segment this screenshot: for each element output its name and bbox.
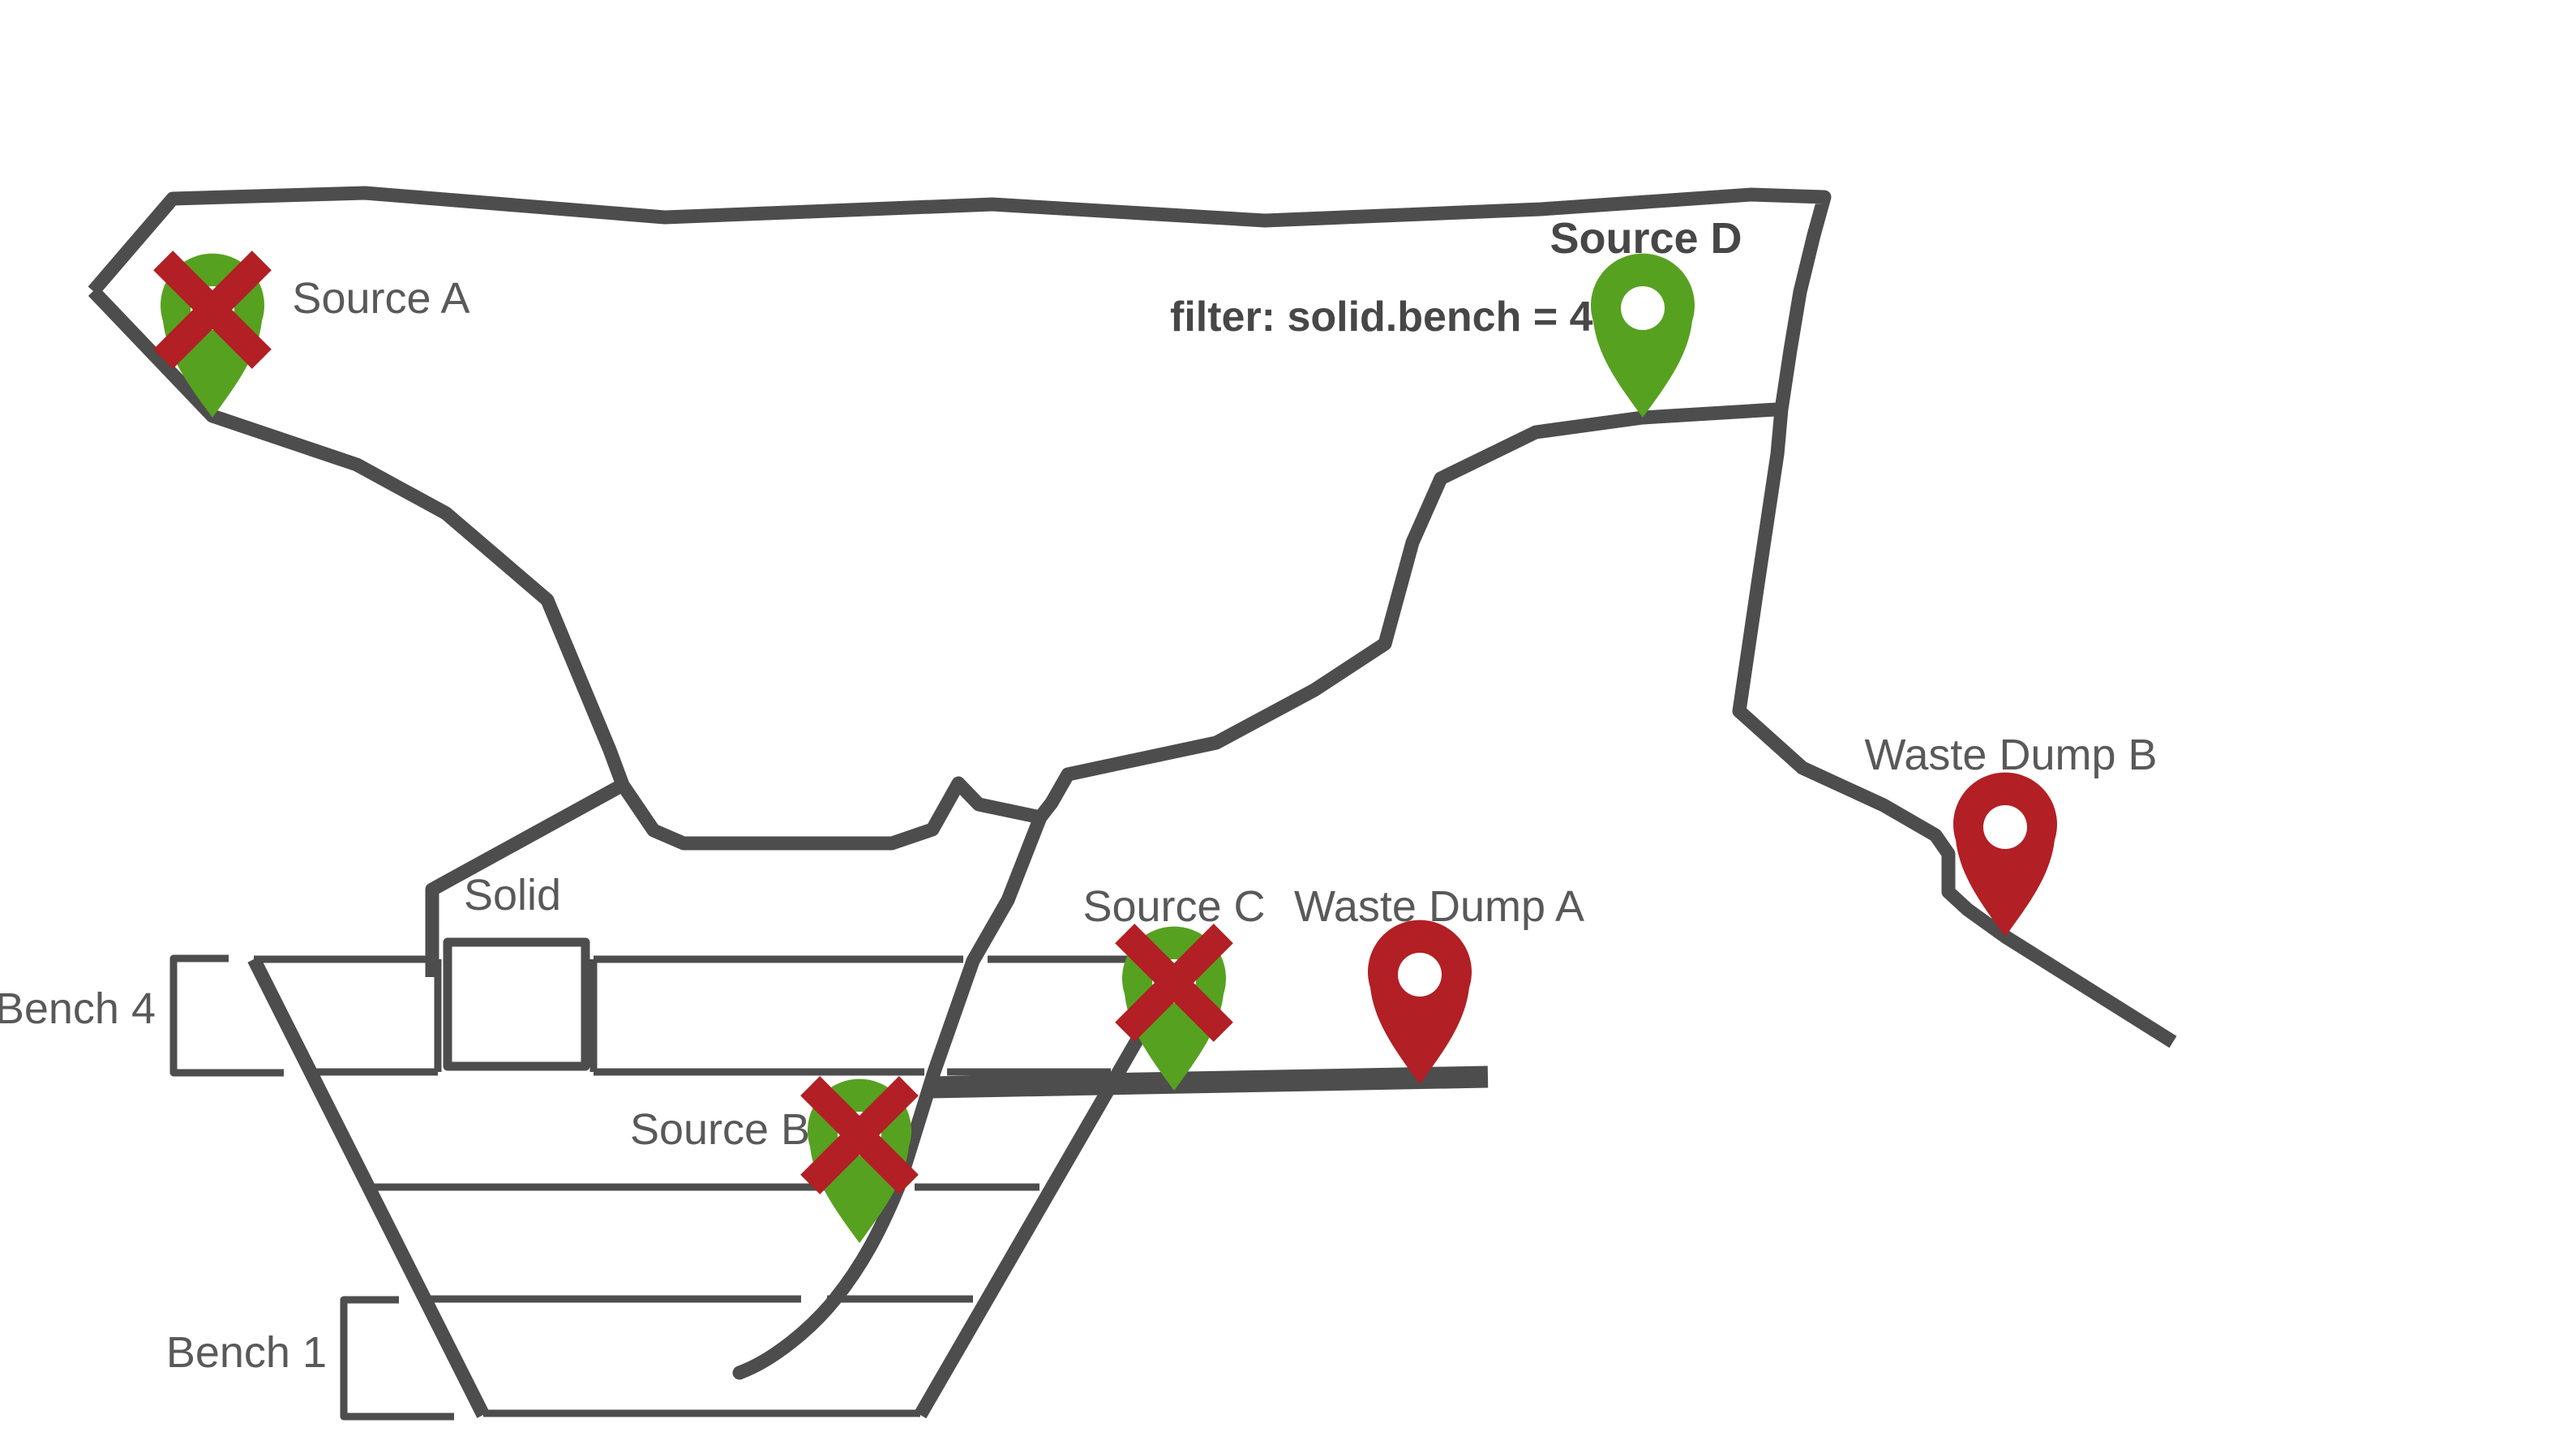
source-d-pin-icon — [1591, 254, 1695, 418]
source-c-label: Source C — [1082, 882, 1265, 931]
source-a-label: Source A — [292, 274, 469, 323]
waste-dump-b-pin-hole — [1983, 805, 2027, 849]
source-b-marker: Source B — [630, 1076, 919, 1243]
waste-dump-a-pin-hole — [1398, 953, 1442, 997]
filter-note: filter: solid.bench = 4 — [1170, 294, 1593, 341]
source-b-label: Source B — [630, 1105, 810, 1154]
pit-rim-lower-wall — [93, 291, 1776, 843]
solid-label: Solid — [464, 871, 561, 920]
bench-4-label: Bench 4 — [0, 984, 156, 1033]
source-a-marker: Source A — [153, 251, 469, 418]
mine-plan-figure: Solid Bench 4 Bench 1 filter: solid.benc… — [0, 0, 2576, 1449]
waste-dump-a-marker: Waste Dump A — [1294, 882, 1584, 1084]
haul-road — [931, 1077, 1488, 1087]
source-d-pin-hole — [1621, 286, 1665, 330]
waste-dump-a-label: Waste Dump A — [1294, 882, 1584, 931]
mine-plan-diagram: Solid Bench 4 Bench 1 filter: solid.benc… — [0, 0, 2576, 1449]
bench-lines — [254, 959, 1177, 1413]
source-c-marker: Source C — [1082, 882, 1265, 1091]
waste-dump-b-marker: Waste Dump B — [1864, 731, 2157, 937]
source-d-label: Source D — [1549, 214, 1742, 263]
waste-dump-a-pin-icon — [1368, 920, 1472, 1084]
bench-structure — [254, 942, 1184, 1415]
waste-dump-b-label: Waste Dump B — [1864, 731, 2157, 779]
solid-block — [448, 942, 585, 1066]
bench-1-label: Bench 1 — [166, 1328, 327, 1377]
